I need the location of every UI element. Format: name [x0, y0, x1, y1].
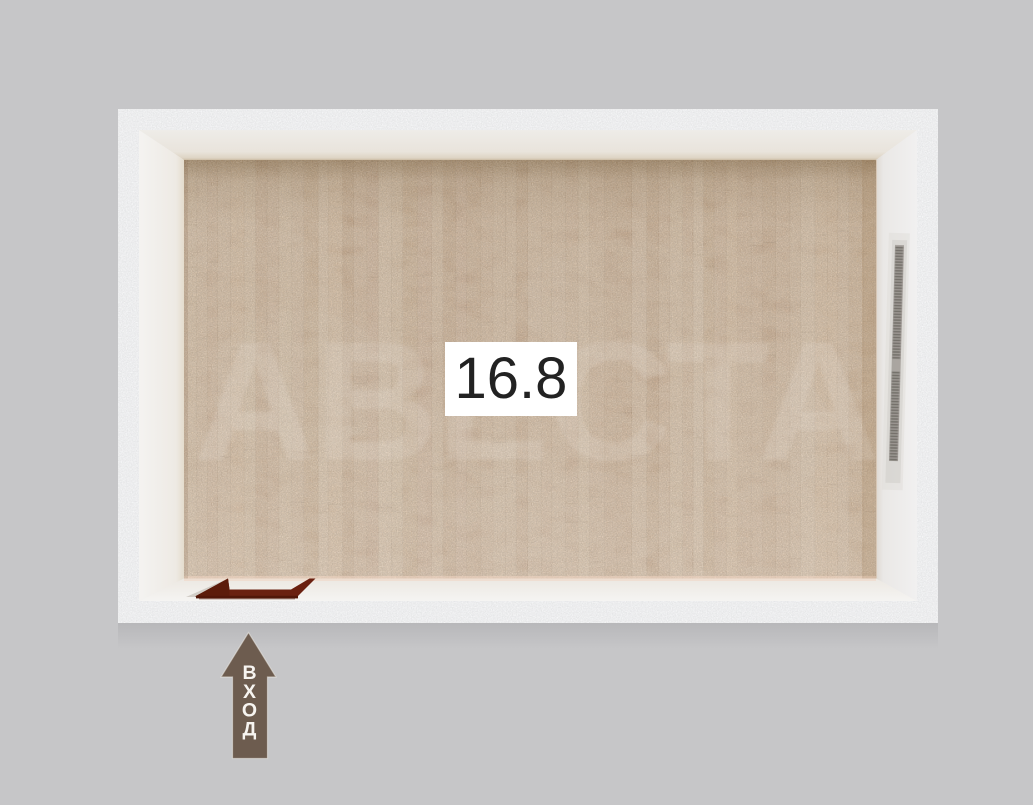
svg-text:Д: Д [243, 719, 257, 741]
svg-text:16.8: 16.8 [455, 346, 568, 411]
